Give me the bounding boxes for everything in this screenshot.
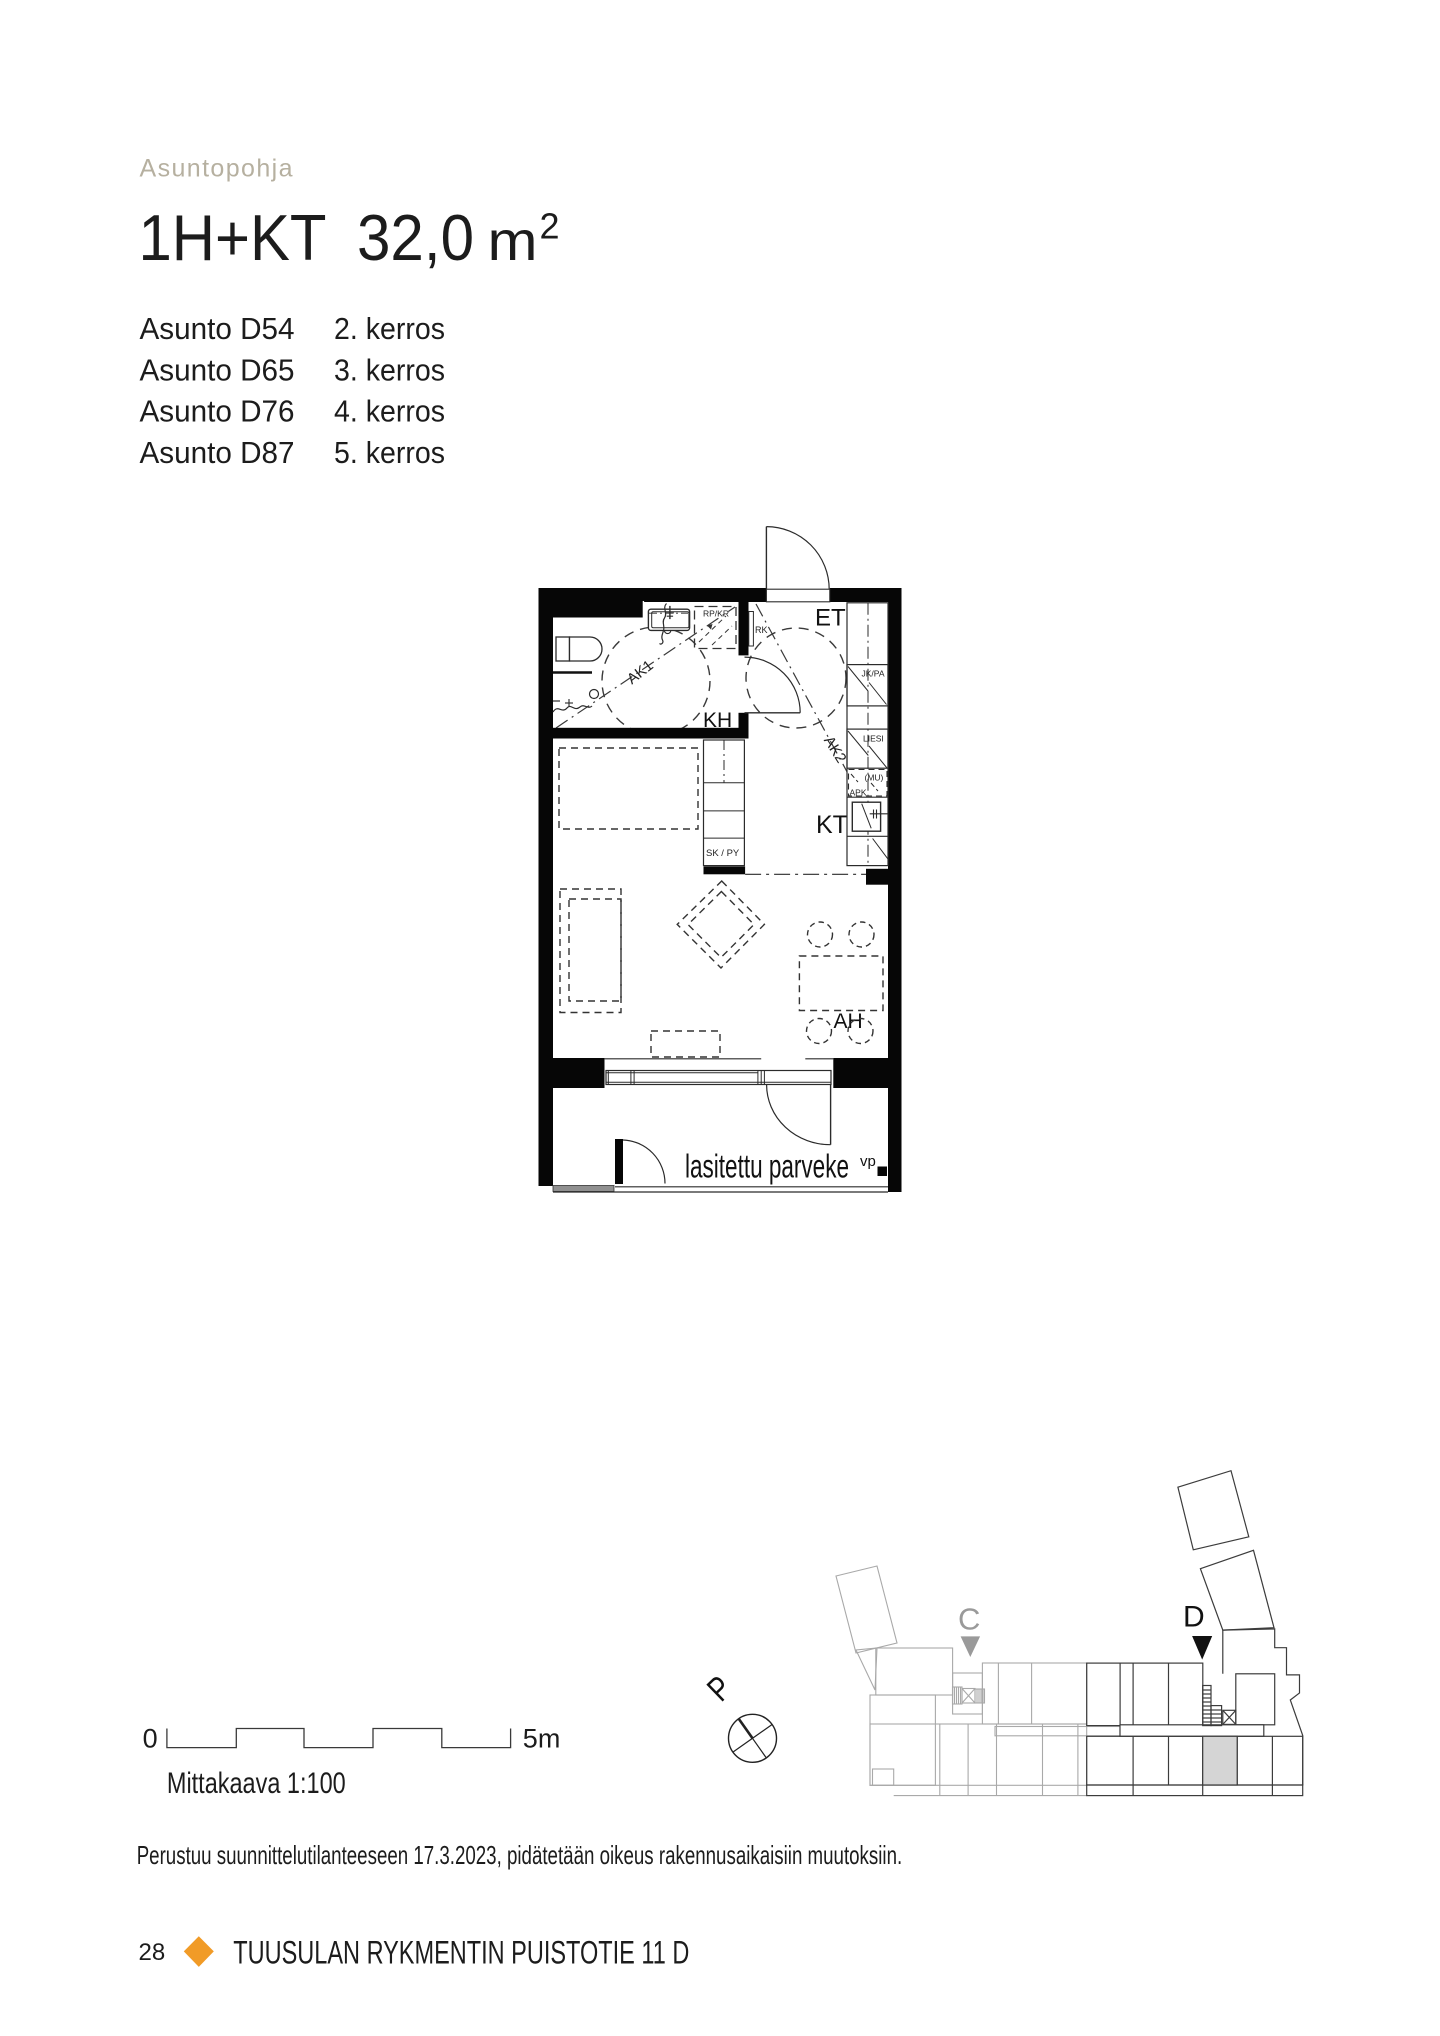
svg-text:2. kerros: 2. kerros [334, 311, 445, 346]
svg-text:Asunto D54: Asunto D54 [140, 311, 295, 346]
svg-text:KH: KH [703, 709, 732, 732]
svg-text:KT: KT [816, 811, 848, 839]
svg-text:32,0: 32,0 [357, 201, 474, 274]
svg-text:Mittakaava 1:100: Mittakaava 1:100 [167, 1767, 346, 1800]
svg-text:SK / PY: SK / PY [706, 848, 740, 859]
svg-text:vp: vp [860, 1153, 876, 1170]
svg-text:C: C [958, 1602, 980, 1637]
svg-text:(MU): (MU) [865, 773, 884, 783]
svg-text:Asunto D87: Asunto D87 [140, 435, 295, 470]
svg-text:0: 0 [143, 1724, 158, 1754]
svg-text:4. kerros: 4. kerros [334, 394, 445, 429]
svg-text:28: 28 [139, 1939, 166, 1966]
svg-text:APK: APK [850, 788, 867, 798]
svg-text:m: m [488, 209, 538, 272]
svg-text:2: 2 [540, 206, 560, 247]
svg-text:Perustuu suunnittelutilanteese: Perustuu suunnittelutilanteeseen 17.3.20… [137, 1840, 903, 1870]
svg-text:lasitettu parveke: lasitettu parveke [685, 1148, 849, 1185]
svg-text:5. kerros: 5. kerros [334, 435, 445, 470]
svg-text:Asunto D65: Asunto D65 [140, 353, 295, 388]
svg-text:3. kerros: 3. kerros [334, 353, 445, 388]
svg-text:LIESI: LIESI [863, 734, 884, 744]
svg-text:1H+KT: 1H+KT [139, 201, 327, 274]
svg-text:RK: RK [755, 625, 768, 635]
svg-text:5m: 5m [523, 1724, 561, 1754]
svg-text:Asuntopohja: Asuntopohja [140, 155, 294, 183]
svg-text:TUUSULAN RYKMENTIN PUISTOTIE 1: TUUSULAN RYKMENTIN PUISTOTIE 11 D [233, 1935, 689, 1971]
svg-text:JK/PA: JK/PA [862, 669, 885, 679]
svg-text:ET: ET [815, 605, 846, 632]
svg-text:Asunto D76: Asunto D76 [140, 394, 295, 429]
svg-text:D: D [1183, 1601, 1205, 1634]
